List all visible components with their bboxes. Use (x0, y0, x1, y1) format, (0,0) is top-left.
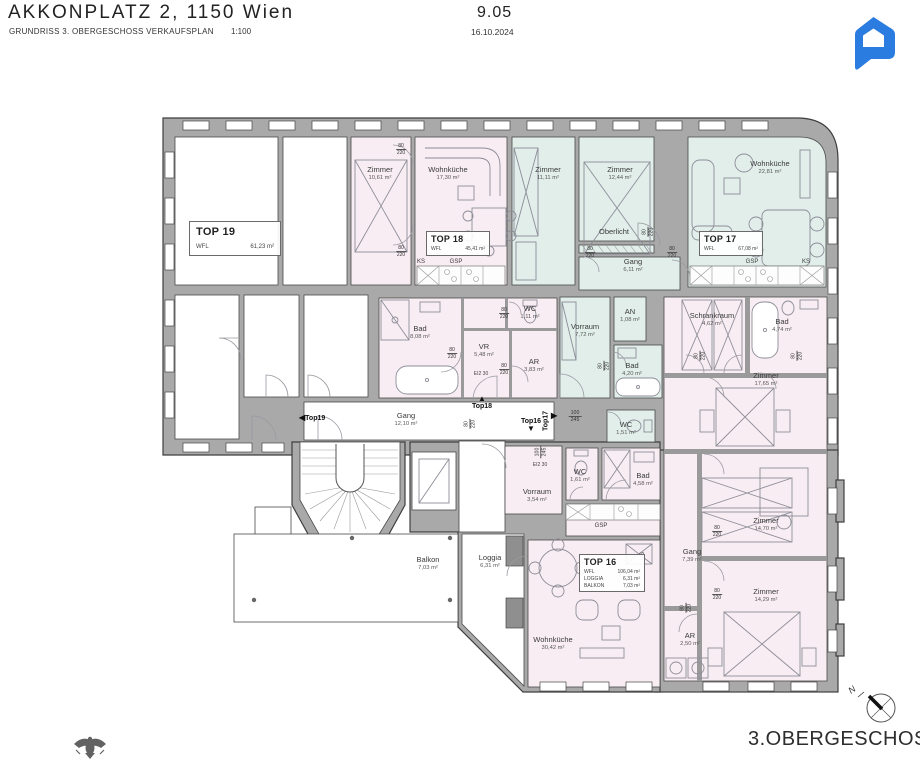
coat-of-arms-icon (74, 737, 106, 759)
unit-box-top16: TOP 16 WFL106,04 m² LOGGIA6,31 m² BALKON… (579, 554, 645, 592)
unit-box-top19: TOP 19 WFL61,23 m² (189, 221, 281, 256)
floor-plan-sheet: { "header": { "title": "AKKONPLATZ 2, 11… (0, 0, 920, 763)
unit-box-top17: TOP 17 WFL67,08 m² (699, 231, 763, 256)
svg-text:N: N (846, 683, 857, 695)
unit-box-top18: TOP 18 WFL45,41 m² (426, 231, 490, 256)
floor-name: 3.OBERGESCHOSS (748, 728, 920, 751)
floor-plan: N (0, 0, 920, 763)
compass-icon: N (846, 683, 895, 722)
